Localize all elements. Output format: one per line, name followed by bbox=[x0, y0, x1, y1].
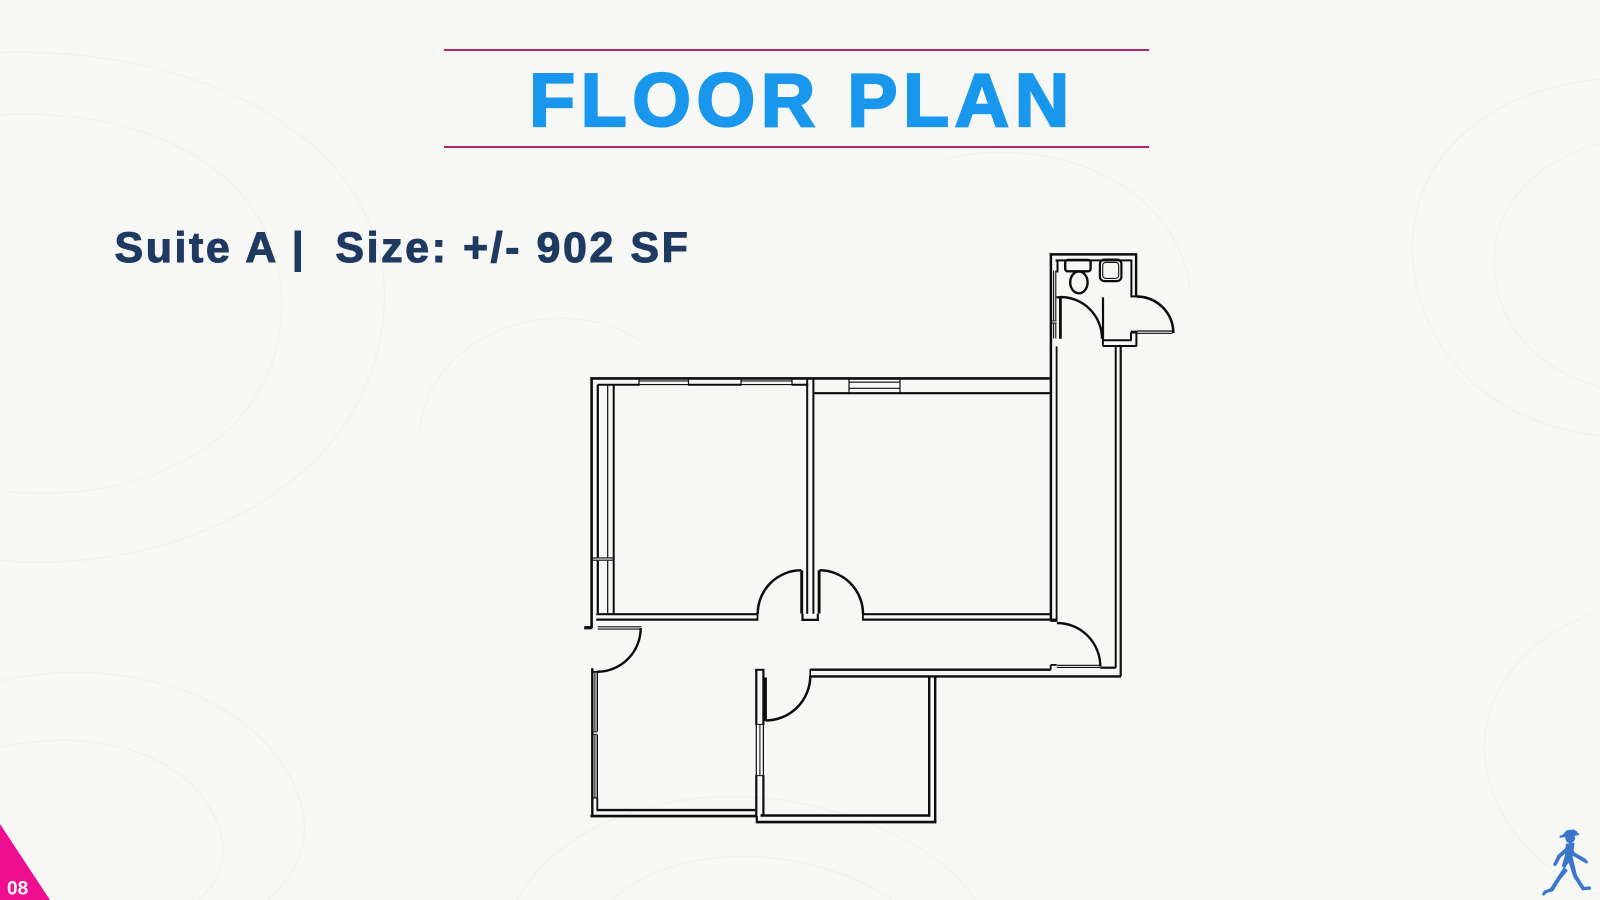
svg-text:08: 08 bbox=[7, 879, 28, 900]
